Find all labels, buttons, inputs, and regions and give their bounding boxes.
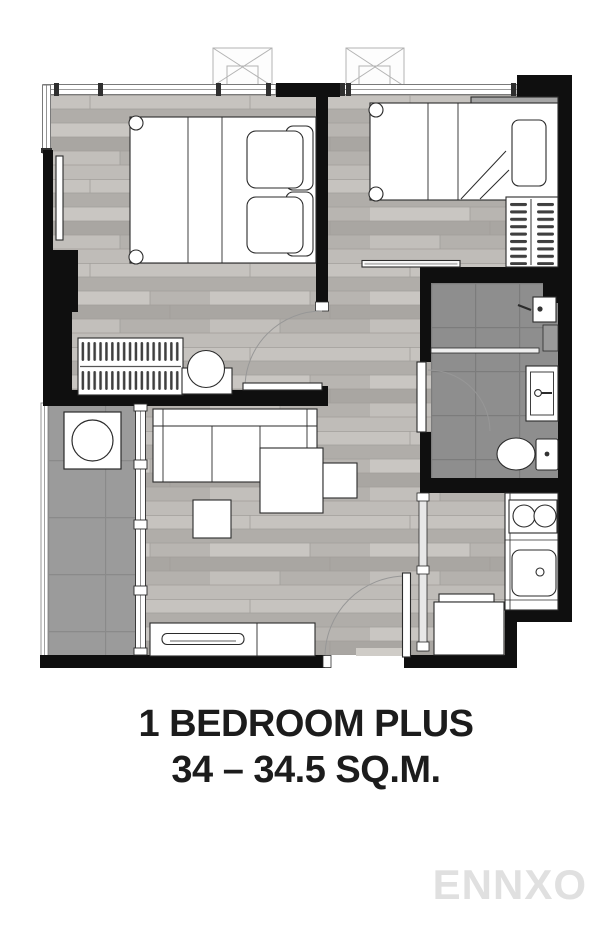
window-top-bedroom-1	[43, 83, 276, 96]
entrance-threshold	[356, 648, 402, 656]
ottoman	[193, 500, 231, 538]
pillow	[512, 120, 546, 186]
sliding-door-bedroom-2	[362, 261, 460, 268]
kitchen-sink	[512, 550, 556, 596]
plan-title-line1: 1 BEDROOM PLUS	[0, 701, 612, 747]
tv	[162, 634, 244, 645]
bath-niche	[543, 325, 558, 351]
window-left-bedroom-1	[41, 85, 52, 153]
sink-basin	[526, 366, 558, 421]
window-top-bedroom-2	[340, 83, 517, 96]
plan-title: 1 BEDROOM PLUS 34 – 34.5 SQ.M.	[0, 701, 612, 793]
outside-area	[517, 622, 612, 668]
double-bed	[129, 116, 316, 264]
ac-unit-1	[213, 48, 272, 86]
plan-title-line2: 34 – 34.5 SQ.M.	[0, 747, 612, 793]
shower-screen	[431, 348, 539, 353]
wardrobe-bedroom-2	[506, 197, 558, 267]
partition-kitchen	[417, 493, 429, 651]
watermark-logo: ENNXO	[433, 861, 587, 909]
floor-plan	[0, 0, 612, 700]
floor-plan-page: 1 BEDROOM PLUS 34 – 34.5 SQ.M. ENNXO	[0, 0, 612, 931]
toilet	[497, 438, 558, 470]
washing-machine	[64, 412, 121, 469]
tv-console	[150, 623, 315, 656]
coffee-table	[260, 448, 323, 513]
fridge	[434, 594, 504, 655]
ac-unit-2	[346, 48, 404, 86]
wall-end-cap	[316, 302, 329, 311]
stove	[509, 500, 557, 533]
balcony-railing	[41, 403, 48, 656]
side-table	[323, 463, 357, 498]
floor-plan-svg	[0, 0, 612, 700]
sliding-door-balcony	[134, 404, 147, 655]
mirror-panel	[56, 156, 63, 240]
single-bed	[369, 103, 558, 201]
wardrobe-bedroom-1	[78, 338, 183, 395]
